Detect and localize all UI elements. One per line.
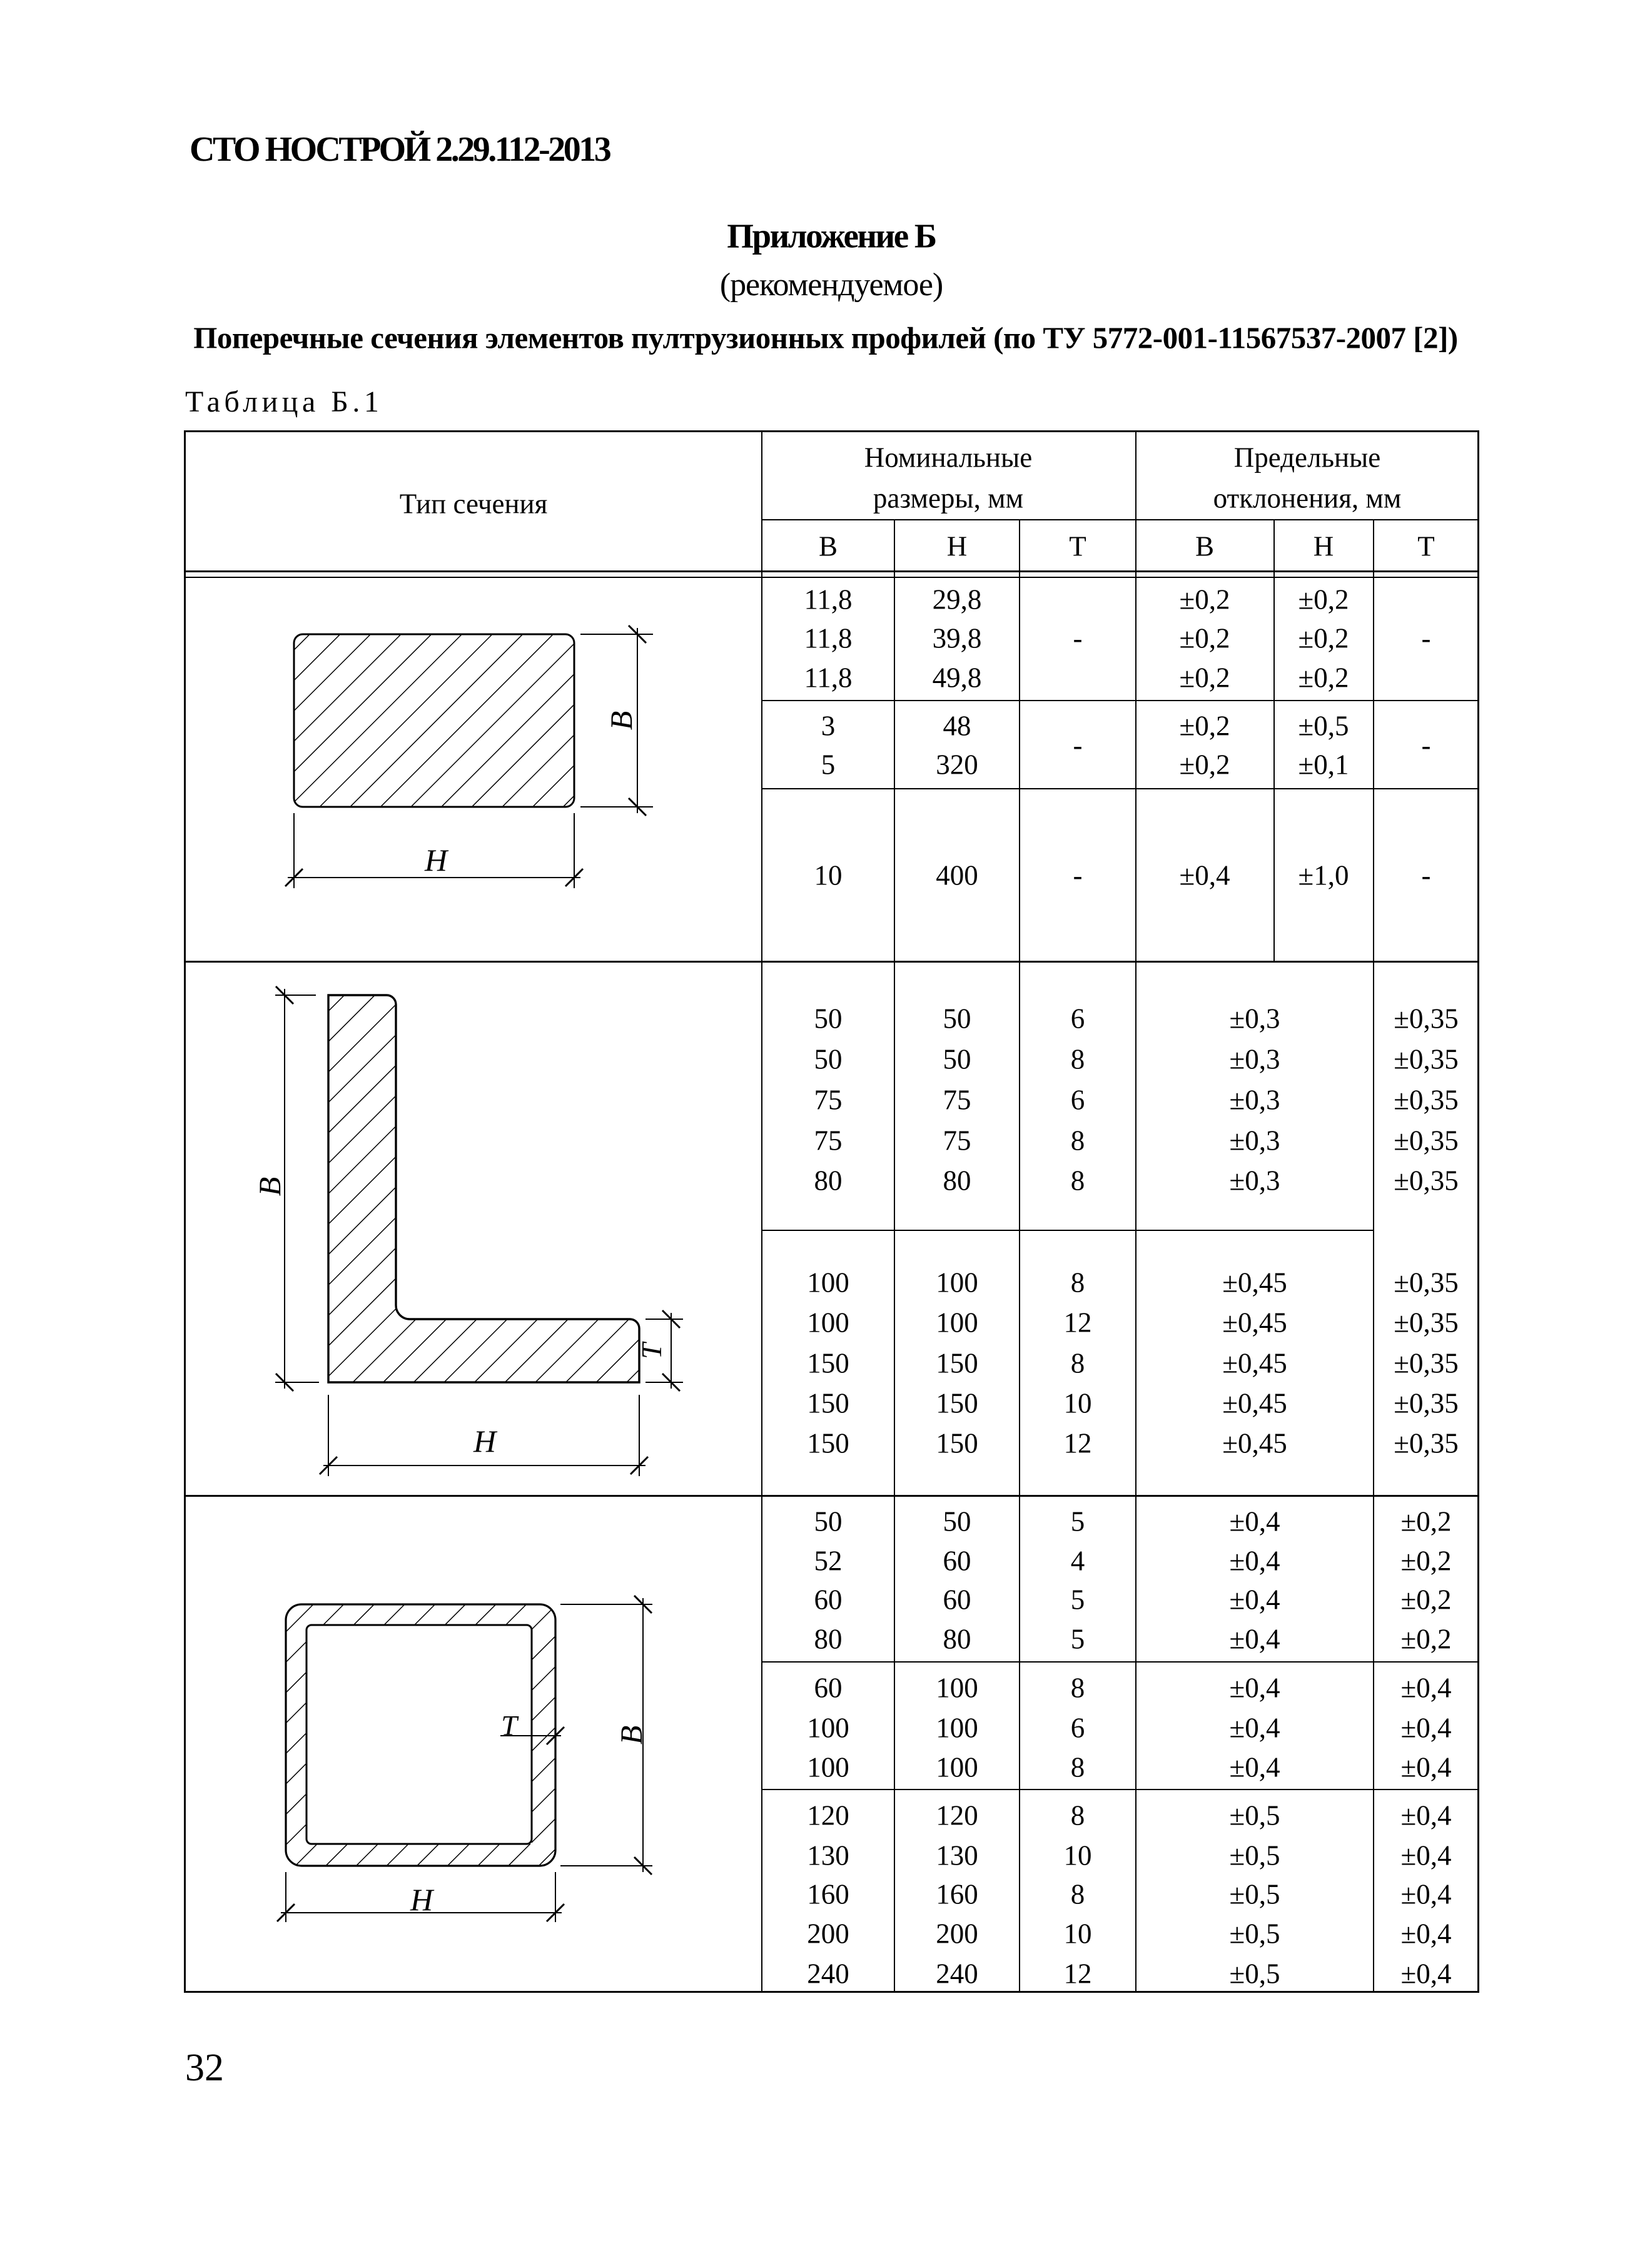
svg-text:T: T [501,1709,519,1741]
svg-text:H: H [424,843,449,878]
svg-text:B: B [252,1177,287,1197]
svg-text:H: H [473,1424,498,1459]
svg-text:T: T [635,1341,667,1359]
svg-text:B: B [604,711,639,731]
svg-text:B: B [614,1726,649,1745]
svg-text:H: H [410,1882,435,1917]
